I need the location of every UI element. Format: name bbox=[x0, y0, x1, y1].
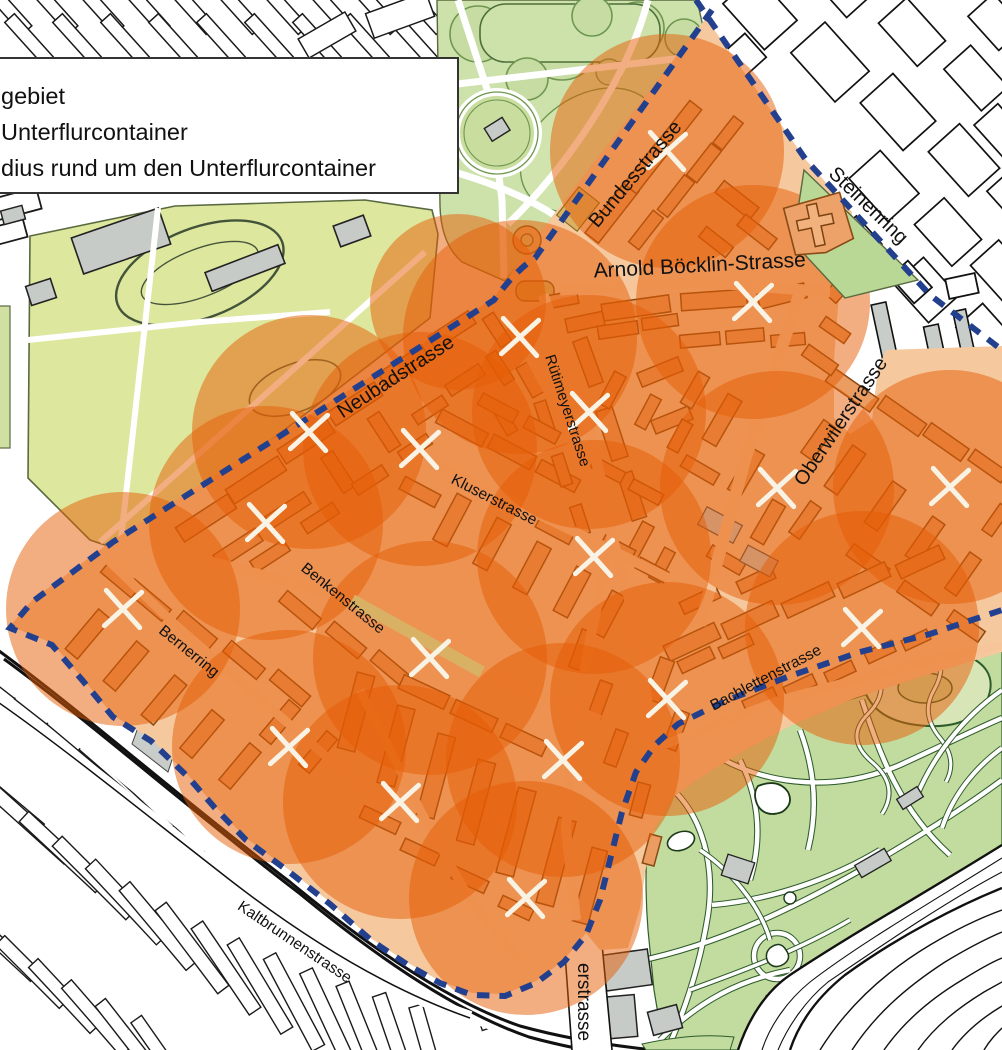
svg-text:dius rund um den Unterflurcont: dius rund um den Unterflurcontainer bbox=[1, 155, 376, 181]
svg-text:gebiet: gebiet bbox=[1, 83, 65, 109]
svg-text:erstrasse: erstrasse bbox=[573, 963, 594, 1041]
svg-text:Unterflurcontainer: Unterflurcontainer bbox=[1, 119, 188, 145]
